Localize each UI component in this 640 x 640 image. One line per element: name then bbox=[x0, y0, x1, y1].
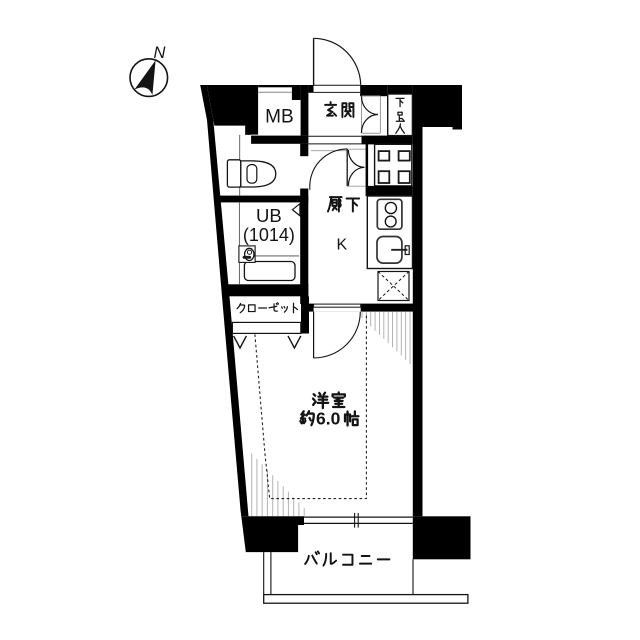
svg-text:N: N bbox=[154, 44, 166, 62]
svg-text:K: K bbox=[336, 237, 347, 254]
svg-text:6.0: 6.0 bbox=[316, 409, 341, 429]
svg-text:UB: UB bbox=[256, 205, 282, 226]
svg-text:(1014): (1014) bbox=[243, 225, 295, 245]
svg-text:MB: MB bbox=[265, 106, 294, 127]
